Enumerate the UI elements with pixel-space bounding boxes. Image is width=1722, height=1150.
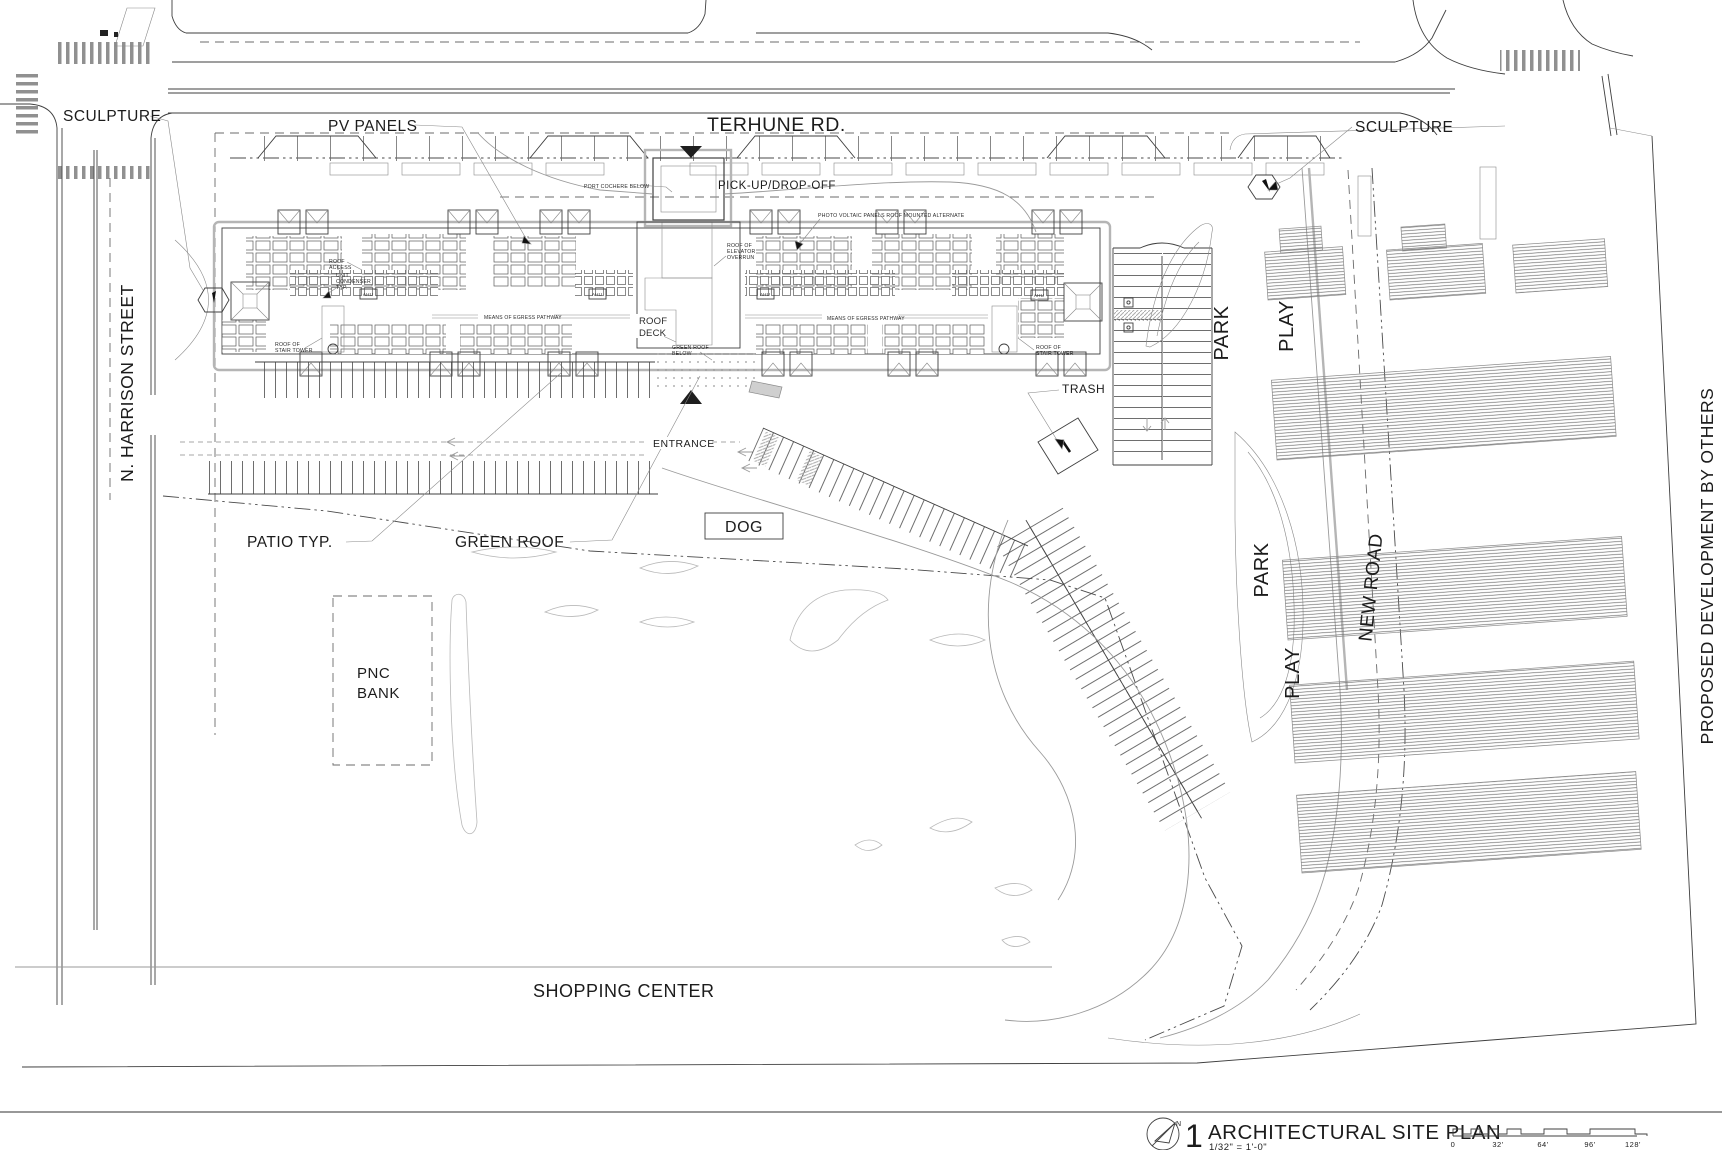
- scale-tick: 0: [1451, 1140, 1456, 1149]
- ahu-note: AHU: [363, 292, 373, 297]
- svg-text:STAIR TOWER: STAIR TOWER: [275, 348, 313, 354]
- parking-row-south: [208, 461, 658, 494]
- scale-tick: 96': [1584, 1140, 1595, 1149]
- pv-panels-label: PV PANELS: [328, 118, 418, 135]
- n-harrison-street-label: N. HARRISON STREET: [117, 284, 137, 482]
- pickup-dropoff-label: PICK-UP/DROP-OFF: [718, 180, 836, 192]
- svg-text:STAIR TOWER: STAIR TOWER: [1036, 351, 1074, 357]
- patio-typ-label: PATIO TYP.: [247, 534, 333, 551]
- diagonal-row-long: [993, 501, 1234, 838]
- svg-text:ACCESS: ACCESS: [329, 265, 352, 271]
- terhune-rd-label: TERHUNE RD.: [707, 114, 846, 136]
- detail-number: 1: [1185, 1118, 1203, 1150]
- svg-text:AHU: AHU: [592, 292, 602, 297]
- trash-enclosure: [1038, 418, 1098, 474]
- bank-label: BANK: [357, 685, 400, 702]
- scale-tick: 32': [1492, 1140, 1503, 1149]
- architectural-site-plan-sheet: SCULPTURE PV PANELS TERHUNE RD. PICK-UP/…: [0, 0, 1722, 1150]
- park-lower-label: PARK: [1251, 542, 1273, 597]
- park-upper-label: PARK: [1211, 305, 1233, 360]
- landscape-islands: [450, 547, 1032, 947]
- roof-deck-note: ROOF: [639, 316, 667, 327]
- egress-right-note: MEANS OF EGRESS PATHWAY: [827, 316, 905, 322]
- proposed-development-label: PROPOSED DEVELOPMENT BY OTHERS: [1697, 388, 1717, 745]
- median-hatch: [115, 8, 155, 46]
- hc-access-aisle: [1114, 310, 1162, 321]
- svg-text:BELOW: BELOW: [672, 351, 692, 357]
- egress-left-note: MEANS OF EGRESS PATHWAY: [484, 315, 562, 321]
- sculpture-right-label: SCULPTURE: [1355, 119, 1453, 136]
- sculpture-left-label: SCULPTURE: [63, 108, 161, 125]
- crosswalk-north: [58, 42, 152, 64]
- harrison-street: [0, 8, 172, 1005]
- northeast-intersection: [1413, 0, 1633, 136]
- scale-tick: 64': [1537, 1140, 1548, 1149]
- crosswalk-south: [56, 166, 154, 179]
- north-letter: N: [1176, 1121, 1182, 1128]
- dog-label: DOG: [725, 519, 763, 536]
- green-roof-label: GREEN ROOF: [455, 534, 564, 551]
- crosswalk-hatch: [1480, 167, 1496, 239]
- svg-text:OVERRUN: OVERRUN: [727, 255, 754, 261]
- scale-tick: 128': [1625, 1140, 1641, 1149]
- crosswalk-hatch: [1358, 176, 1371, 236]
- site-plan-drawing: SCULPTURE PV PANELS TERHUNE RD. PICK-UP/…: [0, 0, 1722, 1150]
- crosswalk-west: [16, 74, 38, 136]
- port-cochere-note: PORT COCHERE BELOW: [584, 184, 649, 190]
- stop-bar: [100, 30, 108, 36]
- pnc-label: PNC: [357, 665, 390, 682]
- title-block: N 1 ARCHITECTURAL SITE PLAN 1/32" = 1'-0…: [0, 1112, 1722, 1150]
- entry-plaza: [655, 352, 755, 388]
- shopping-center-label: SHOPPING CENTER: [533, 981, 715, 1001]
- north-arrow-icon: N: [1147, 1118, 1182, 1150]
- ahu-boxes: [360, 289, 1048, 300]
- stop-bar: [114, 32, 118, 37]
- parking-row-north: [255, 362, 655, 398]
- stair-tower-east: [992, 306, 1017, 352]
- pv-alternate-note: PHOTO VOLTAIC PANELS ROOF MOUNTED ALTERN…: [818, 213, 965, 219]
- street-parking-ticks: [240, 136, 1340, 161]
- canopy-rects: [330, 163, 1324, 175]
- svg-text:DECK: DECK: [639, 328, 667, 339]
- east-parking-lot: [1113, 243, 1212, 465]
- sheet-scale: 1/32" = 1'-0": [1209, 1142, 1267, 1150]
- play-lower-label: PLAY: [1282, 647, 1304, 699]
- play-upper-label: PLAY: [1276, 300, 1298, 352]
- trash-label: TRASH: [1062, 382, 1105, 396]
- svg-text:TYP.: TYP.: [336, 285, 348, 291]
- canopy-below: [749, 381, 782, 398]
- east-hip-tower: [1064, 283, 1102, 321]
- crosswalk-east: [1500, 50, 1580, 71]
- entrance-label: ENTRANCE: [653, 438, 715, 450]
- svg-text:AHU: AHU: [760, 292, 770, 297]
- entry-arrow: [680, 390, 702, 404]
- svg-text:AHU: AHU: [1034, 293, 1044, 298]
- diagonal-row-upper: [748, 428, 1028, 579]
- sheet-title: ARCHITECTURAL SITE PLAN: [1208, 1121, 1501, 1144]
- terhune-road: [168, 0, 1455, 197]
